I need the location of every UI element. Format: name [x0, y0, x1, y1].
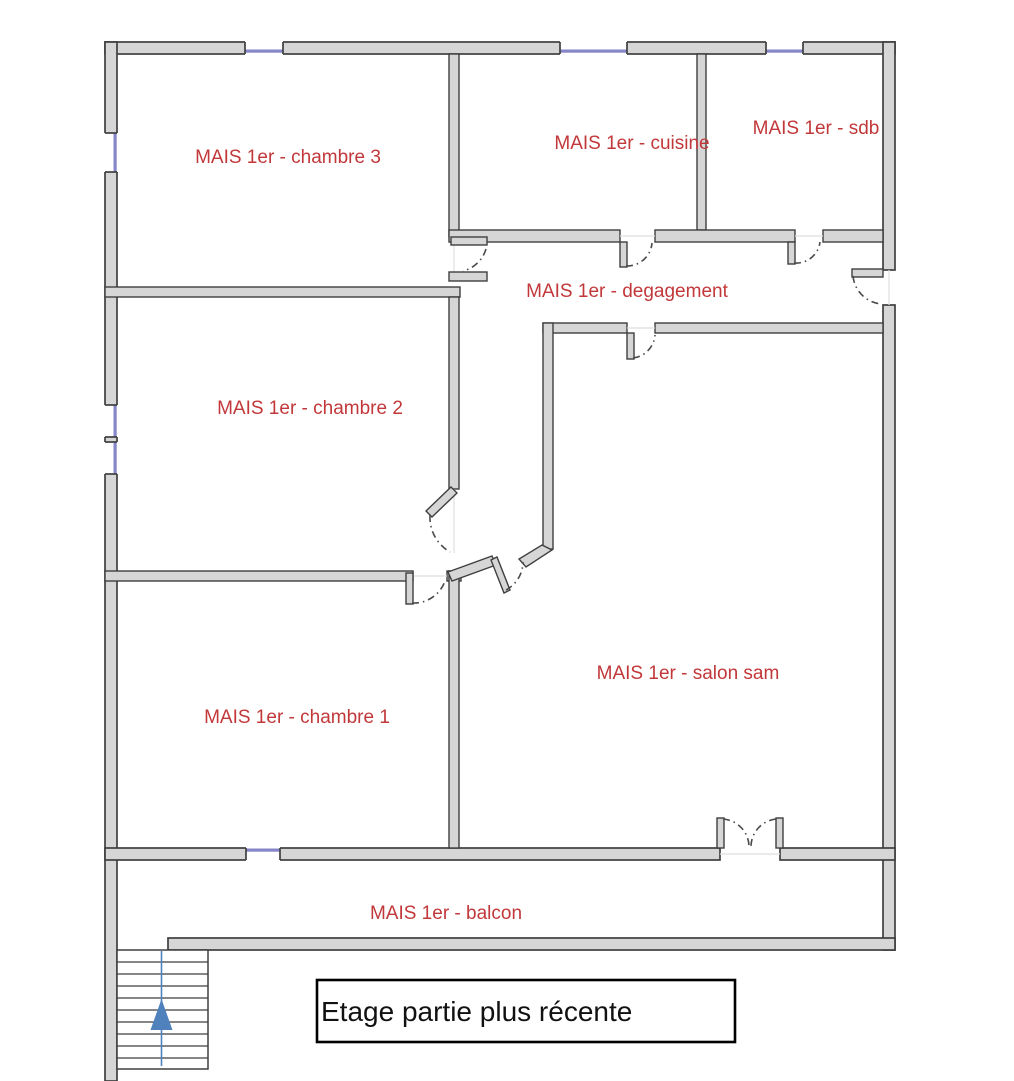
room-label-cuisine: MAIS 1er - cuisine [554, 133, 709, 154]
floor-plan-page: MAIS 1er - chambre 3 MAIS 1er - cuisine … [0, 0, 1014, 1081]
wall-salon-west [543, 323, 553, 549]
door-leaf [491, 557, 510, 593]
wall-chambre3-cuisine [449, 54, 459, 237]
wall-salon-chamfer [519, 545, 552, 567]
room-chambre-2 [117, 297, 449, 571]
room-balcon [117, 860, 883, 938]
wall-chambre1-salon [449, 571, 459, 848]
room-label-balcon: MAIS 1er - balcon [370, 903, 522, 924]
room-label-salon-sam: MAIS 1er - salon sam [597, 663, 780, 684]
rooms [117, 54, 883, 938]
wall-chambre3-chambre2 [105, 287, 460, 297]
room-label-chambre-1: MAIS 1er - chambre 1 [204, 707, 390, 728]
window-left-3 [104, 442, 118, 474]
staircase [117, 950, 208, 1069]
window-left-2 [104, 405, 118, 437]
room-chambre-3 [117, 54, 449, 287]
window-top-3 [766, 41, 803, 56]
window-left-1 [104, 133, 118, 172]
wall-salon-north-a [543, 323, 627, 333]
wall-corridor-north-b [655, 230, 795, 242]
room-label-chambre-3: MAIS 1er - chambre 3 [195, 147, 381, 168]
floor-plan-drawing: MAIS 1er - chambre 3 MAIS 1er - cuisine … [0, 0, 1014, 1081]
wall-salon-north-b [655, 323, 883, 333]
wall-balcony-front [168, 938, 895, 950]
wall-facade-right-of-french-door [780, 848, 895, 860]
wall-facade-left-of-french-door [105, 848, 720, 860]
wall-chambre2-chambre1 [105, 571, 413, 581]
door-salon-from-vestibule [491, 557, 523, 593]
window-top-2 [560, 41, 627, 56]
window-facade-chambre1 [246, 847, 280, 861]
wall-vestibule-diagonal [448, 556, 496, 581]
wall-chambre2-east [449, 297, 459, 489]
room-sdb [706, 54, 883, 230]
window-top-1 [245, 41, 283, 56]
room-salon-sam [553, 333, 883, 848]
room-label-sdb: MAIS 1er - sdb [753, 118, 880, 139]
wall-corridor-north-c [823, 230, 883, 242]
room-label-degagement: MAIS 1er - degagement [526, 281, 728, 302]
annotation: Etage partie plus récente [317, 980, 735, 1042]
wall-exterior-right-upper [883, 42, 895, 270]
annotation-label: Etage partie plus récente [321, 996, 632, 1027]
room-label-chambre-2: MAIS 1er - chambre 2 [217, 398, 403, 419]
wall-exterior-left [105, 42, 117, 1081]
